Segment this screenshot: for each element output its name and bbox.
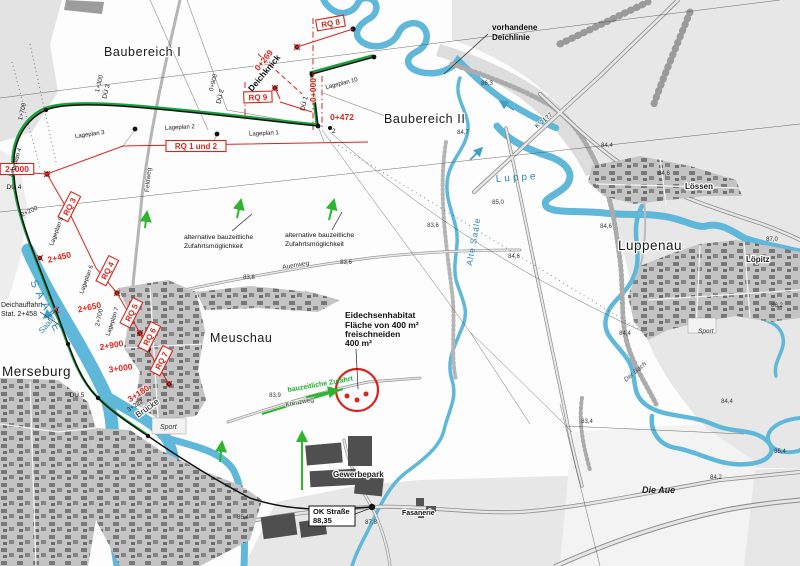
label-baubereich-ii: Baubereich II bbox=[384, 112, 465, 126]
station-label-minor: 0+900 bbox=[208, 73, 219, 92]
elevation-label: 85,4 bbox=[237, 515, 249, 521]
elevation-label: 84,4 bbox=[721, 399, 733, 405]
station-label: 0+000 bbox=[308, 78, 318, 102]
svg-text:87,0: 87,0 bbox=[766, 237, 778, 243]
lageplan-sheet-label: Lageplan 1 bbox=[249, 130, 280, 138]
svg-text:DÜ 1: DÜ 1 bbox=[298, 95, 309, 112]
alt-access-note1-line1: alternative bauzeitliche bbox=[184, 234, 253, 241]
elevation-label: 83,4 bbox=[581, 419, 593, 425]
svg-text:83,8: 83,8 bbox=[243, 275, 255, 281]
label-point-2: 2 bbox=[332, 128, 336, 135]
label-luppe: Luppe bbox=[495, 171, 538, 185]
rq-section-label: RQ 9 bbox=[244, 91, 273, 103]
svg-text:84,6: 84,6 bbox=[508, 254, 520, 260]
label-loepitz: Löpitz bbox=[746, 255, 770, 264]
road-name-label: Feldweg bbox=[144, 167, 154, 193]
ok-strasse-line1: OK Straße bbox=[313, 507, 350, 516]
svg-text:84,4: 84,4 bbox=[721, 399, 733, 405]
svg-text:84,6: 84,6 bbox=[600, 224, 612, 230]
label-vorhandene-2: Deichlinie bbox=[492, 33, 530, 42]
svg-text:84,6: 84,6 bbox=[658, 171, 670, 177]
road-name-label: Kreuzweg bbox=[285, 396, 315, 408]
svg-text:Lageplan 2: Lageplan 2 bbox=[165, 124, 196, 132]
lageplan-sheet-label: Lageplan 10 bbox=[325, 77, 359, 91]
svg-text:DÜ 5: DÜ 5 bbox=[70, 391, 85, 399]
habitat-note-line4: 400 m² bbox=[345, 338, 372, 348]
lageplan-sheet-label: Lageplan 5 bbox=[49, 216, 65, 247]
svg-text:86,3: 86,3 bbox=[481, 81, 493, 87]
elevation-label: 83,6 bbox=[340, 260, 352, 266]
alt-access-leader-1 bbox=[232, 214, 252, 231]
alt-access-leader-2 bbox=[332, 212, 342, 230]
svg-text:84,4: 84,4 bbox=[619, 331, 631, 337]
elevation-label: 87,0 bbox=[766, 237, 778, 243]
elevation-label: 85,0 bbox=[492, 200, 504, 206]
svg-text:Lageplan 3: Lageplan 3 bbox=[75, 130, 106, 140]
station-label: 2+900 bbox=[99, 338, 125, 352]
elevation-label: 84,2 bbox=[710, 475, 722, 481]
alt-access-note1-line2: Zufahrtsmöglichkeit bbox=[184, 243, 243, 250]
svg-text:RQ 1 und 2: RQ 1 und 2 bbox=[175, 142, 218, 151]
elevation-label: 85,4 bbox=[774, 449, 786, 455]
map-canvas: OK Straße 88,35 Baubereich I Baubereich … bbox=[0, 0, 800, 566]
svg-text:84,4: 84,4 bbox=[601, 143, 613, 149]
svg-text:0+000: 0+000 bbox=[308, 78, 318, 102]
label-die-aue: Die Aue bbox=[642, 485, 675, 495]
svg-text:84,7: 84,7 bbox=[457, 130, 469, 136]
label-vorhandene-1: vorhandene bbox=[492, 23, 538, 32]
alt-access-note2-line2: Zufahrtsmöglichkeit bbox=[285, 241, 344, 248]
ok-strasse-note: OK Straße 88,35 bbox=[309, 506, 355, 526]
rq-section-label: RQ 3 bbox=[58, 192, 81, 222]
svg-text:Lageplan 10: Lageplan 10 bbox=[325, 77, 359, 91]
svg-text:Lageplan 7: Lageplan 7 bbox=[106, 306, 121, 337]
label-alte-saale: Alte Saale bbox=[464, 217, 482, 267]
rq-section-label: RQ 1 und 2 bbox=[166, 141, 226, 152]
svg-text:2+450: 2+450 bbox=[46, 249, 72, 265]
elevation-label: 87,8 bbox=[365, 520, 377, 526]
rq-section-label: RQ 4 bbox=[96, 256, 119, 286]
label-baubereich-i: Baubereich I bbox=[104, 45, 181, 59]
access-arrow-1 bbox=[237, 200, 241, 218]
lageplan-sheet-label: Lageplan 3 bbox=[75, 130, 106, 140]
svg-text:RQ 9: RQ 9 bbox=[248, 93, 268, 103]
svg-text:Kreuzweg: Kreuzweg bbox=[285, 396, 315, 408]
lageplan-sheet-label: Lageplan 7 bbox=[106, 306, 121, 337]
elevation-label: 84,4 bbox=[601, 143, 613, 149]
svg-text:Lageplan 6: Lageplan 6 bbox=[79, 264, 95, 295]
label-gewerbepark: Gewerbepark bbox=[333, 470, 384, 479]
svg-text:85,4: 85,4 bbox=[237, 515, 249, 521]
svg-text:0+472: 0+472 bbox=[330, 112, 354, 122]
svg-text:83,6: 83,6 bbox=[340, 260, 352, 266]
rq-section-label: RQ 8 bbox=[316, 15, 346, 31]
svg-text:2+900: 2+900 bbox=[99, 338, 125, 352]
du-crossing-label: DÜ 4 bbox=[7, 183, 22, 191]
ok-strasse-line2: 88,35 bbox=[313, 516, 332, 525]
svg-text:Lageplan 5: Lageplan 5 bbox=[49, 216, 65, 247]
svg-text:Lageplan 1: Lageplan 1 bbox=[249, 130, 280, 138]
station-label: 3+000 bbox=[108, 361, 133, 374]
svg-text:Feldweg: Feldweg bbox=[144, 167, 154, 193]
label-deichauffahrt-2: Stat. 2+458 bbox=[1, 311, 37, 318]
svg-text:86,2: 86,2 bbox=[771, 303, 783, 309]
label-merseburg: Merseburg bbox=[2, 364, 71, 379]
du-crossing-label: DÜ 5 bbox=[70, 391, 85, 399]
station-label: 0+472 bbox=[330, 112, 354, 122]
site-plan-map: OK Straße 88,35 Baubereich I Baubereich … bbox=[0, 0, 800, 566]
elevation-label: 84,6 bbox=[508, 254, 520, 260]
svg-text:84,2: 84,2 bbox=[710, 475, 722, 481]
svg-text:DÜ 4: DÜ 4 bbox=[7, 183, 22, 191]
elevation-label: 84,4 bbox=[619, 331, 631, 337]
elevation-label: 84,7 bbox=[457, 130, 469, 136]
svg-text:87,8: 87,8 bbox=[365, 520, 377, 526]
access-arrow-2 bbox=[329, 200, 334, 220]
elevation-label: 83,8 bbox=[243, 275, 255, 281]
lageplan-sheet-label: Lageplan 6 bbox=[79, 264, 95, 295]
label-sport-2: Sport bbox=[698, 328, 715, 335]
elevation-label: 86,2 bbox=[771, 303, 783, 309]
svg-text:85,0: 85,0 bbox=[492, 200, 504, 206]
label-deichauffahrt-1: Deichauffahrt bbox=[1, 302, 43, 309]
du-crossing-label: DÜ 1 bbox=[298, 95, 309, 112]
habitat-dots bbox=[345, 392, 369, 403]
svg-text:83,4: 83,4 bbox=[581, 419, 593, 425]
svg-text:83,9: 83,9 bbox=[269, 393, 281, 399]
red-leader-rq8 bbox=[297, 29, 353, 47]
access-note-green: bauzeitliche Zufahrt bbox=[287, 375, 354, 393]
elevation-label: 84,6 bbox=[658, 171, 670, 177]
label-fasanerie: Fasanerie bbox=[402, 510, 435, 517]
svg-text:85,4: 85,4 bbox=[774, 449, 786, 455]
access-arrow-3 bbox=[145, 212, 147, 228]
label-meuschau: Meuschau bbox=[210, 331, 272, 345]
label-loessen: Lössen bbox=[685, 182, 713, 191]
habitat-note-line1: Eidechsenhabitat bbox=[345, 310, 416, 320]
svg-text:3+000: 3+000 bbox=[108, 361, 133, 374]
svg-text:83,6: 83,6 bbox=[427, 223, 439, 229]
svg-text:0+900: 0+900 bbox=[208, 73, 219, 92]
elevation-label: 84,6 bbox=[600, 224, 612, 230]
elevation-label: 86,3 bbox=[481, 81, 493, 87]
label-sport-1: Sport bbox=[160, 424, 178, 431]
label-luppenau: Luppenau bbox=[618, 238, 682, 253]
lageplan-sheet-label: Lageplan 2 bbox=[165, 124, 196, 132]
flow-arrow-2 bbox=[470, 148, 482, 160]
station-label: 2+450 bbox=[46, 249, 72, 265]
alt-access-note2-line1: alternative bauzeitliche bbox=[285, 232, 354, 239]
elevation-label: 83,6 bbox=[427, 223, 439, 229]
elevation-label: 83,9 bbox=[269, 393, 281, 399]
